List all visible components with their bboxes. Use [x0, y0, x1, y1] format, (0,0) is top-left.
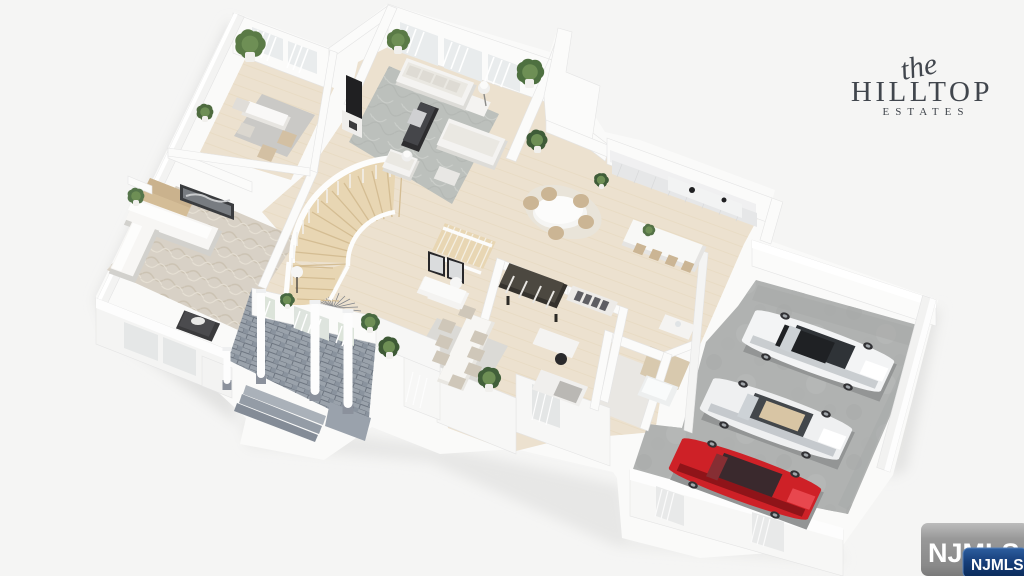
- svg-text:ESTATES: ESTATES: [883, 106, 970, 118]
- svg-text:HILLTOP: HILLTOP: [851, 76, 993, 108]
- svg-text:NJMLS: NJMLS: [971, 557, 1024, 574]
